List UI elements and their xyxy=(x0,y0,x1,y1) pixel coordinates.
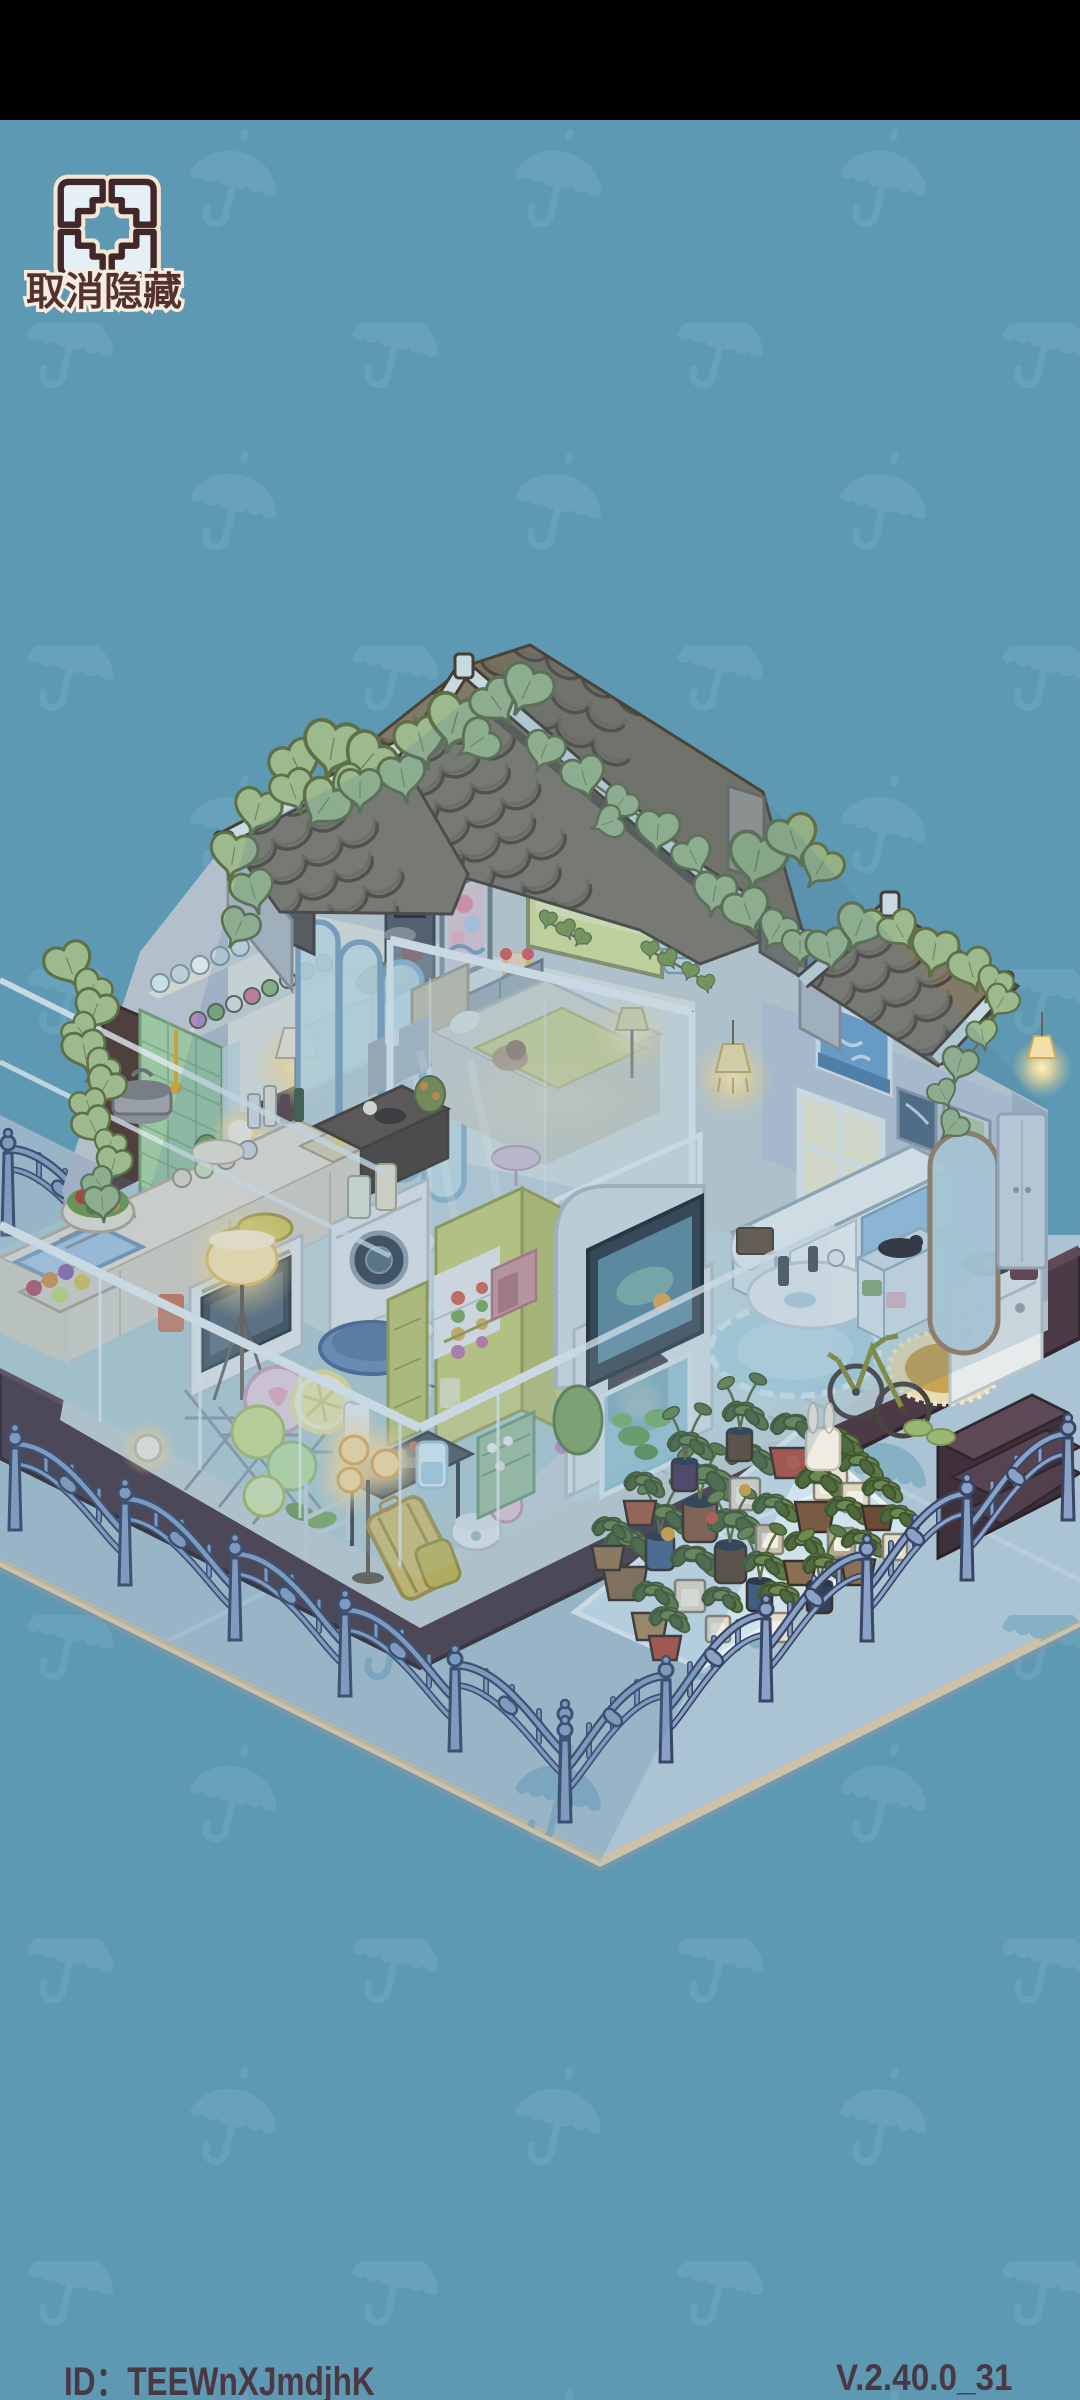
svg-text:取消隐藏: 取消隐藏 xyxy=(26,271,182,314)
